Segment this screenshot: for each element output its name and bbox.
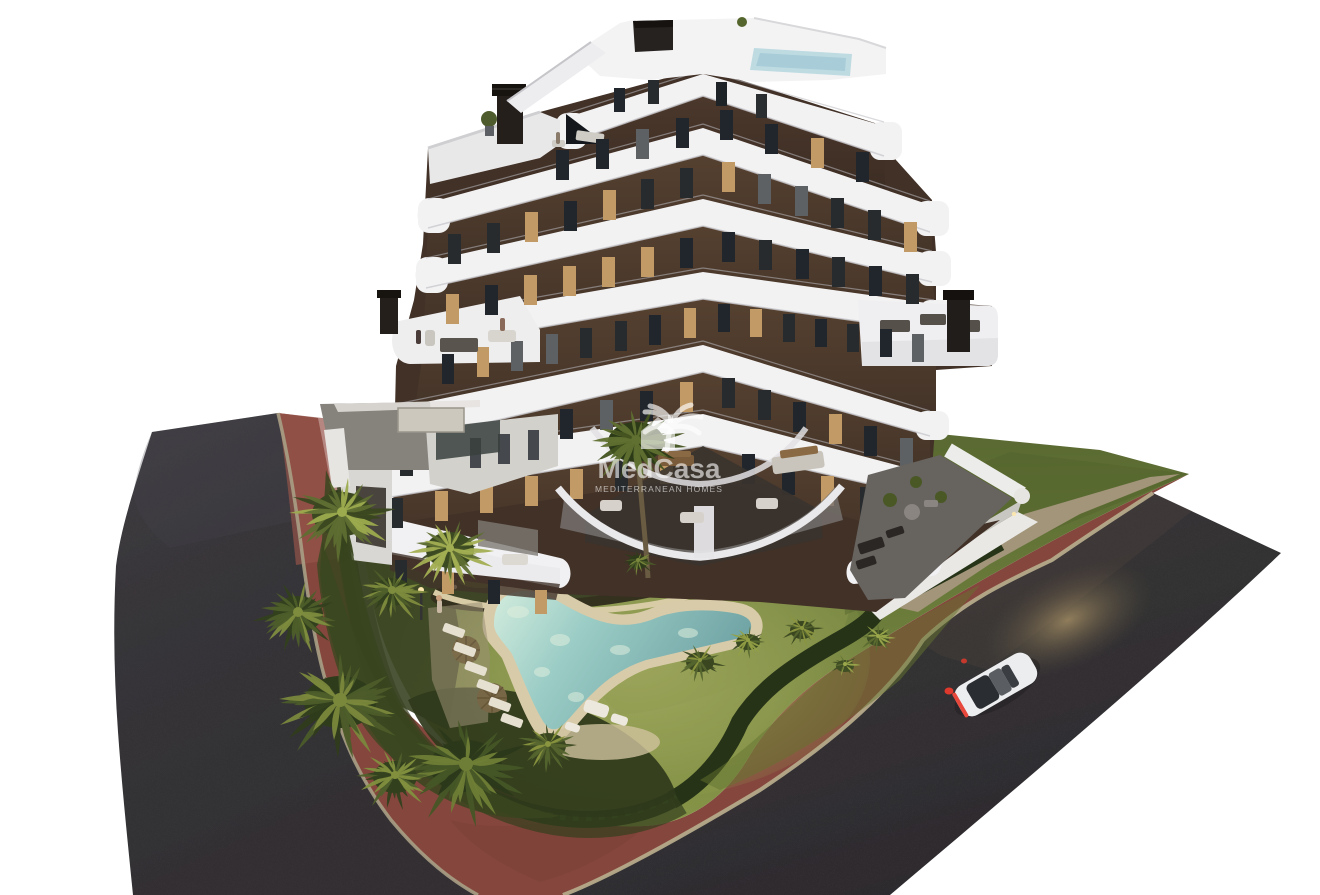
svg-text:MedCasa: MedCasa: [598, 453, 721, 484]
svg-text:MEDITERRANEAN HOMES: MEDITERRANEAN HOMES: [595, 484, 723, 494]
